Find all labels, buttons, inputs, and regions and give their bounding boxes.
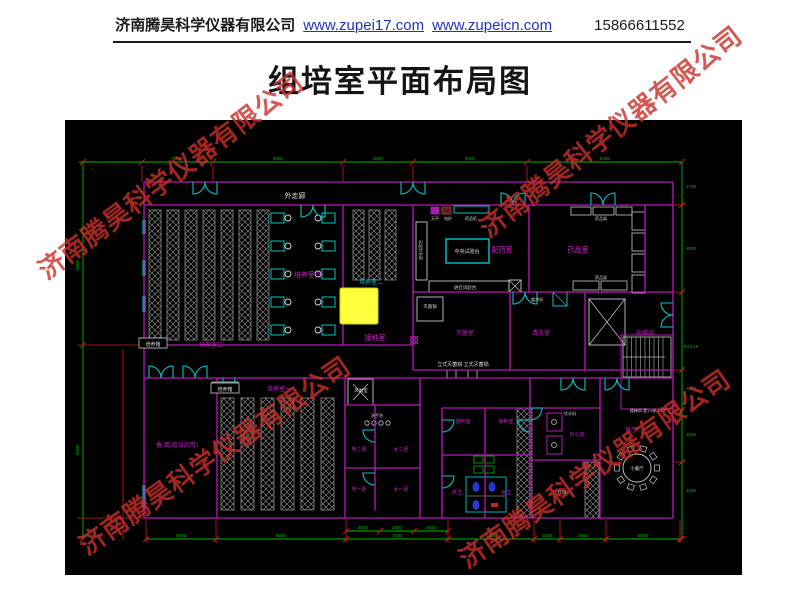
dimension-label: 6000 xyxy=(465,156,476,161)
plan-label: 餐厅 xyxy=(625,426,637,434)
header: 济南腾昊科学仪器有限公司www.zupei17.comwww.zupeicn.c… xyxy=(0,14,800,35)
plan-label: 男二更 xyxy=(351,447,366,453)
plan-label: 灭菌锅 xyxy=(423,303,437,310)
plan-label: 培养室二 xyxy=(199,341,223,349)
company-name: 济南腾昊科学仪器有限公司 xyxy=(115,17,295,34)
phone-number: 15866611552 xyxy=(594,17,685,34)
dimension-label: 2500 xyxy=(358,525,369,530)
dimension-label: 7500 xyxy=(392,533,403,538)
plan-label: 培养室一 xyxy=(267,385,291,393)
plan-label: 楼梯间 宽1.5米 24步 xyxy=(630,407,666,413)
plan-label: 立式灭菌锅 立式灭菌锅 xyxy=(437,361,488,368)
plan-label: 接种室 xyxy=(365,333,386,342)
plan-label: 洗手池 xyxy=(371,412,383,418)
link-zupeicn[interactable]: www.zupeicn.com xyxy=(432,17,552,34)
plan-label: 男卫 xyxy=(452,490,462,496)
dimension-label: 1500 xyxy=(542,533,553,538)
dimension-label: 8400 xyxy=(600,156,611,161)
plan-label: 电炉 xyxy=(444,215,452,221)
plan-label: 培养箱 xyxy=(217,386,232,393)
dimension-label: 5000 xyxy=(638,533,649,538)
dimension-label: 2700 xyxy=(686,184,697,189)
plan-label: 女一更 xyxy=(393,486,408,493)
plan-label: 进仓试验台 xyxy=(417,240,423,260)
plan-label: 女二更 xyxy=(393,446,408,453)
dimension-label: 5000 xyxy=(176,533,187,538)
plan-label: 外走廊 xyxy=(285,191,306,200)
plan-label: 风淋室 xyxy=(354,387,368,394)
plan-label: 进仓试验台 xyxy=(454,284,477,291)
dimension-label: 2500 xyxy=(426,525,437,530)
plan-label: 饮水机 xyxy=(564,410,576,416)
plan-label: 缓冲间 xyxy=(531,296,543,302)
plan-label: 女卫 xyxy=(501,489,511,496)
dimension-label: R24.16 xyxy=(684,344,699,349)
plan-label: 男一更 xyxy=(351,487,366,493)
dimension-label: 5000 xyxy=(373,156,384,161)
plan-label: 药品架 xyxy=(595,215,607,221)
dimension-label: 4000 xyxy=(686,488,697,493)
link-zupei17[interactable]: www.zupei17.com xyxy=(303,17,424,34)
plan-label: 清洗室 xyxy=(532,329,550,337)
plan-label: 配药室 xyxy=(492,245,513,254)
plan-label: 接种室 xyxy=(455,418,470,425)
dimension-label: 6000 xyxy=(486,533,497,538)
plan-label: 中央试验台 xyxy=(454,248,479,255)
dimension-label: 2500 xyxy=(392,525,403,530)
plan-label: 药品室 xyxy=(568,245,589,254)
header-divider xyxy=(113,41,691,43)
floorplan-canvas: 外走廊培养室三培养室二接种室培养箱培养室二培养箱培养室一备 用(组培间用)风淋室… xyxy=(65,120,742,575)
plan-labels: 外走廊培养室三培养室二接种室培养箱培养室二培养箱培养室一备 用(组培间用)风淋室… xyxy=(139,191,666,496)
plan-label: 培养室二 xyxy=(359,278,383,286)
dimension-label: 5000 xyxy=(75,259,80,270)
dimension-label: 5000 xyxy=(172,156,183,161)
floorplan-drawing: 外走廊培养室三培养室二接种室培养箱培养室二培养箱培养室一备 用(组培间用)风淋室… xyxy=(65,120,742,575)
dimension-label: 5000 xyxy=(75,444,80,455)
highlight-box xyxy=(340,288,378,324)
plan-label: 培养室三 xyxy=(294,270,322,279)
dimension-label: 9000 xyxy=(273,156,284,161)
page-title: 组培室平面布局图 xyxy=(0,56,800,101)
dimension-label: 6000 xyxy=(686,246,697,251)
plan-label: 备 用(组培间用) xyxy=(156,441,198,449)
dimension-label: 4000 xyxy=(686,432,697,437)
plan-label: 药品架 xyxy=(595,274,607,280)
plan-label: 药品柜 xyxy=(465,215,477,221)
dimension-label: 9000 xyxy=(276,533,287,538)
dimension-label: 2000 xyxy=(686,386,697,391)
plan-label: 小餐厅 xyxy=(630,465,644,472)
plan-label: 灭菌室 xyxy=(456,329,474,337)
plan-label: 仓库 xyxy=(557,489,567,496)
dimension-label: 2500 xyxy=(578,533,589,538)
plan-label: 办公室 xyxy=(569,431,584,438)
plan-label: 接种室 xyxy=(498,418,513,425)
plan-label: 电梯间 xyxy=(636,329,654,337)
plan-label: 天平 xyxy=(431,216,439,221)
page: 济南腾昊科学仪器有限公司www.zupei17.comwww.zupeicn.c… xyxy=(0,0,800,600)
plan-label: 培养箱 xyxy=(145,341,160,348)
